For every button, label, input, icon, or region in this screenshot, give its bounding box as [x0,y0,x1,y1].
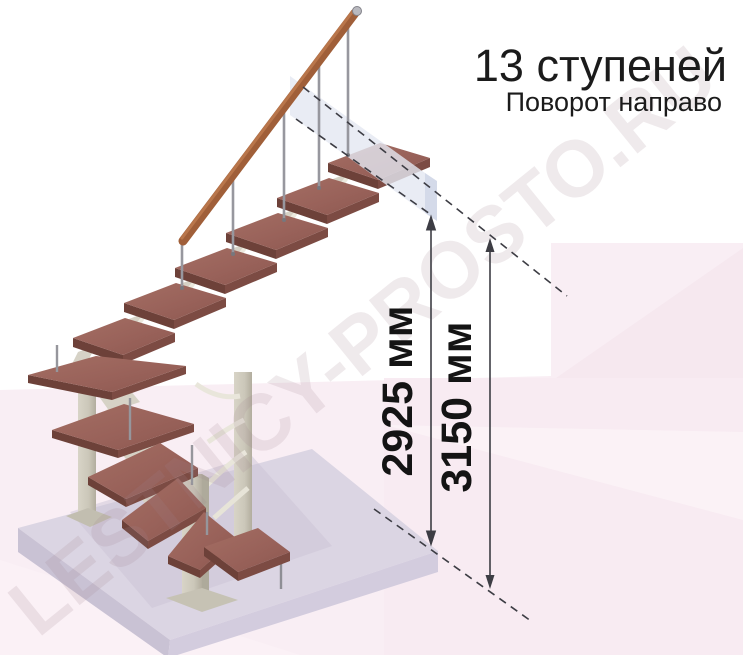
page-subtitle: Поворот направо [506,87,722,117]
staircase-diagram-screenshot: LESTNICY-PROSTO.RU 2925 мм 3150 мм 13 ст… [0,0,743,655]
dimension-label-3150: 3150 мм [433,321,481,492]
staircase-diagram: LESTNICY-PROSTO.RU 2925 мм 3150 мм 13 ст… [0,0,743,655]
baluster-foot [180,286,184,290]
landing-band-end [425,173,437,221]
dimension-label-2925: 2925 мм [374,305,422,476]
baluster-foot [317,186,321,190]
page-title: 13 ступеней [474,40,727,91]
baluster-foot [282,218,286,222]
left-mast [78,392,96,518]
baluster-foot [231,252,235,256]
header: 13 ступеней Поворот направо [474,40,727,117]
handrail-end-cap [353,7,362,16]
